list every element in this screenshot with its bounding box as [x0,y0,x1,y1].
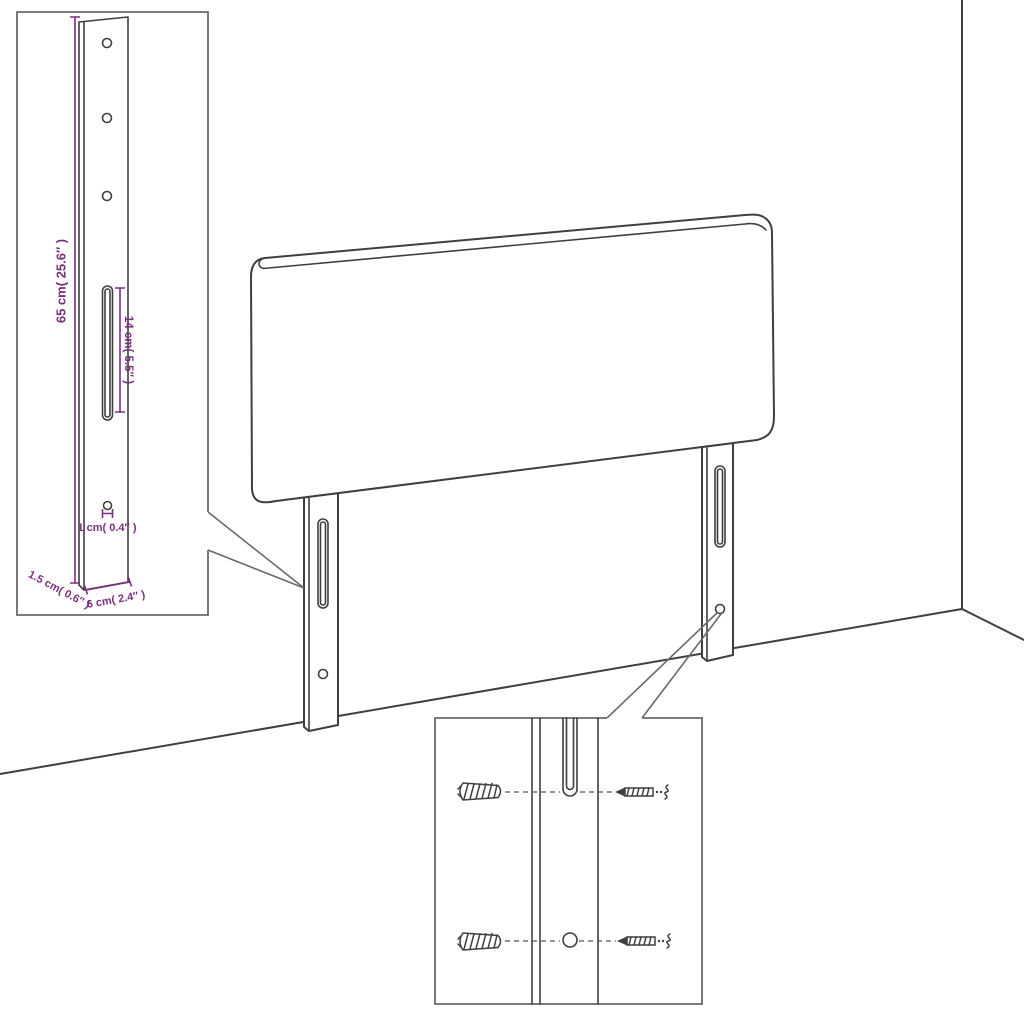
inset-frame [435,718,702,1004]
bracket-detail-inset: 65 cm( 25.6″ ) 14 cm( 5.5″ ) 1 cm( 0.4″ … [17,12,208,615]
assembly-diagram-canvas: 65 cm( 25.6″ ) 14 cm( 5.5″ ) 1 cm( 0.4″ … [0,0,1024,1024]
diagram-page: 65 cm( 25.6″ ) 14 cm( 5.5″ ) 1 cm( 0.4″ … [0,0,1024,1024]
height-dimension-label: 65 cm( 25.6″ ) [53,239,68,323]
right-leg [702,443,733,661]
callout-leader-line [607,612,718,718]
callout-leader-line [208,550,304,588]
screw-dot [660,791,662,793]
screw-dot [662,940,664,942]
hole-dimension-label: 1 cm( 0.4″ ) [77,522,136,534]
slot-dimension-label: 14 cm( 5.5″ ) [122,316,134,384]
headboard [251,215,774,503]
headboard-panel-outline [251,215,774,503]
left-leg [304,493,338,731]
screw-dot [658,940,660,942]
floor-line-right [962,609,1024,640]
hardware-detail-inset [435,718,702,1004]
bracket-callout-leaders [208,512,304,588]
screw-dot [656,791,658,793]
callout-leader-line [208,512,304,588]
callout-leader-line [642,614,721,718]
